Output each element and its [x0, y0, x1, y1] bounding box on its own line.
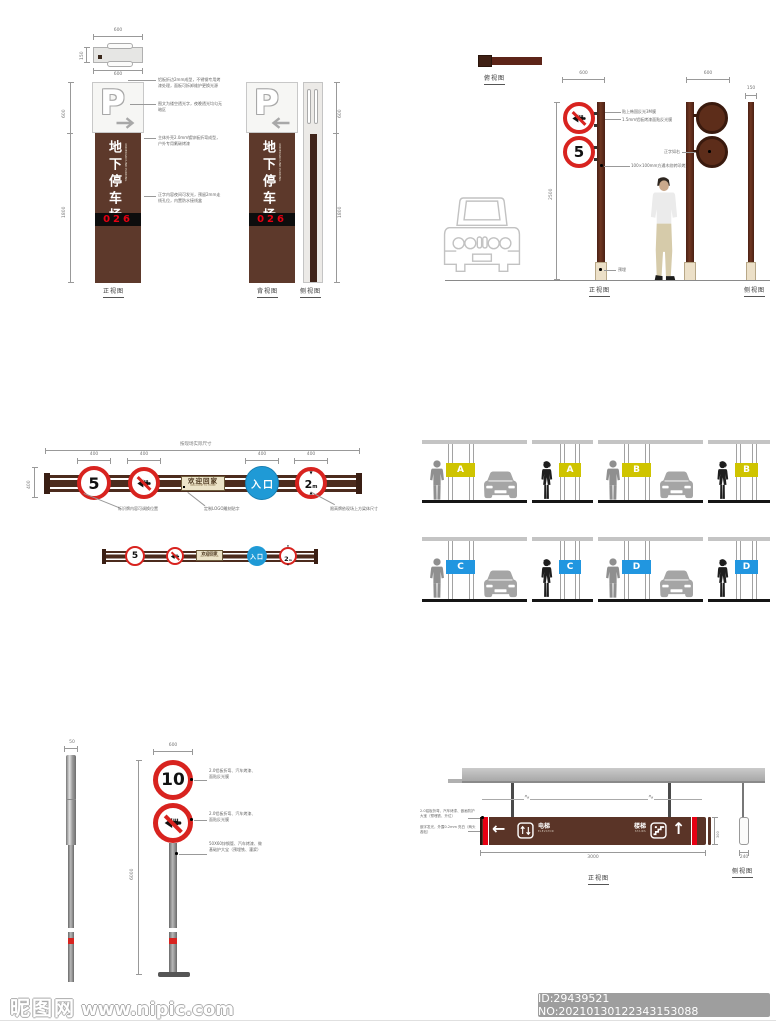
zone-number: 026: [257, 214, 287, 225]
dim-label: 150: [81, 51, 86, 60]
callout-dot: [175, 852, 178, 855]
height-unit: m: [289, 558, 292, 562]
speed-value: 5: [132, 551, 138, 561]
annotation: 标识牌内容可调换位置: [118, 506, 180, 512]
zone-letter: D: [743, 562, 750, 572]
zone-letter: C: [457, 562, 464, 572]
pole-red-band: [169, 938, 177, 944]
man-silhouette: [603, 460, 623, 501]
dim-label: 400: [127, 453, 161, 458]
zone-band: A: [559, 463, 581, 477]
dim-label: 600: [93, 29, 143, 34]
dim-line: [127, 460, 161, 461]
man-silhouette: [427, 558, 447, 599]
sign-bracket: [594, 146, 597, 149]
annotation: 1.5mm铝板烤漆面贴反光膜: [622, 117, 682, 123]
floor-line: [422, 599, 527, 602]
callout-dot: [708, 150, 711, 153]
dim-tick: [67, 133, 73, 134]
no-horn-sign: [128, 467, 160, 499]
ceiling-beam: [422, 440, 527, 444]
car-silhouette: [654, 569, 699, 599]
callout-line: [187, 492, 205, 506]
no-horn-sign: [166, 547, 184, 565]
dim-line: [294, 460, 328, 461]
dim-line: [714, 817, 715, 845]
hanger-rod-side: [742, 783, 744, 817]
sign-pole-side: [748, 102, 754, 280]
dim-label: 2500: [550, 189, 555, 200]
sign-pole-front: [169, 843, 177, 973]
gateway-end-cap: [44, 473, 50, 494]
dim-label: 6000: [131, 869, 136, 880]
dim-line: [138, 760, 139, 975]
dim-line: [64, 748, 78, 749]
ceiling-beam: [462, 768, 765, 783]
pylon-plan-plate-top: [107, 43, 133, 49]
pylon-sub-text: UNDERGROUND PARKING: [124, 143, 128, 181]
callout-line: [179, 854, 207, 855]
person-figure: [647, 176, 681, 281]
man-silhouette: [603, 558, 623, 599]
pole-red-band: [68, 938, 74, 944]
sign-pole-front: [597, 102, 605, 280]
pole-base: [746, 262, 756, 281]
gateway-end-cap: [102, 549, 106, 564]
annotation: 贴上韩国反光3M膜: [622, 109, 682, 115]
floor-line: [708, 500, 770, 503]
sign-bracket: [594, 112, 597, 115]
plate-joint: [66, 799, 76, 800]
speed-limit-sign: 10: [153, 760, 193, 800]
speed-value: 5: [574, 143, 584, 161]
pole-white-band: [169, 928, 177, 932]
dim-label: 600: [339, 109, 344, 118]
car-silhouette: [478, 569, 523, 599]
dim-label: 150: [743, 87, 759, 92]
pylon-side-plate: [314, 89, 318, 124]
elevator-icon: [517, 822, 534, 839]
callout-line: [144, 196, 156, 197]
zone-number: 026: [103, 214, 133, 225]
view-label-side: 侧视图: [744, 288, 765, 297]
zone-letter: A: [567, 465, 574, 475]
annotation: 正字如右: [658, 149, 680, 155]
floor-line: [422, 500, 527, 503]
woman-silhouette: [537, 460, 556, 501]
callout-line: [194, 820, 207, 821]
car-silhouette: [654, 470, 699, 500]
elevator-text-en: ELEVATOR: [538, 830, 554, 834]
annotation: 预埋: [618, 267, 638, 273]
sign-bracket: [594, 124, 597, 127]
woman-silhouette: [537, 558, 556, 599]
zone-letter: D: [633, 562, 640, 572]
dim-label: 1800: [63, 207, 68, 218]
callout-line: [194, 780, 207, 781]
callout-line: [604, 270, 616, 271]
dim-label: 300: [717, 831, 721, 838]
ceiling-beam: [598, 537, 703, 541]
welcome-plaque: 欢迎回家 WELCOME TO HOME: [181, 476, 225, 491]
entrance-sign-small: 入口: [247, 546, 267, 566]
callout-line: [468, 831, 480, 832]
pylon-number-band: 026: [249, 213, 295, 226]
zone-band: D: [735, 560, 758, 574]
dim-label: 400: [245, 453, 279, 458]
zone-band: C: [446, 560, 475, 574]
entrance-text: 入口: [249, 476, 275, 491]
pole-plan-arm: [492, 57, 542, 65]
sign-pole-back: [686, 102, 694, 280]
callout-dot: [481, 816, 484, 819]
callout-line: [128, 80, 156, 81]
callout-line: [144, 138, 156, 139]
arrow-up-glyph: ↑: [672, 819, 685, 838]
dim-label: 600: [562, 72, 605, 77]
floor-line: [708, 599, 770, 602]
dim-label: 600: [93, 73, 143, 78]
hanger-rod: [511, 783, 514, 817]
dim-label: 50: [64, 741, 80, 746]
dim-line: [34, 467, 35, 498]
no-horn-sign: [153, 803, 193, 843]
dim-line: [556, 102, 557, 280]
arrow-up-glyph: ▲: [287, 564, 289, 567]
sign-bracket: [594, 158, 597, 161]
dim-label: 600: [153, 744, 193, 749]
watermark-site: 昵图网: [10, 996, 76, 1020]
plaque-text-en: WELCOME TO HOME: [197, 557, 222, 559]
car-silhouette: [478, 470, 523, 500]
view-label-side: 侧视图: [732, 869, 753, 878]
callout-dot: [183, 486, 185, 488]
pylon-plan-core: [98, 55, 102, 59]
callout-dot: [190, 818, 193, 821]
floor-line: [598, 599, 703, 602]
annotation: 2.0铝板折弯、汽车烤漆、面贴反光膜: [209, 811, 259, 823]
car-outline-drawing: [443, 193, 521, 281]
callout-dot: [600, 164, 603, 167]
zone-letter: B: [633, 465, 640, 475]
gateway-end-cap: [356, 473, 362, 494]
dim-label: 600: [686, 72, 730, 77]
ceiling-beam-step: [448, 779, 462, 783]
annotation: 100×100mm方通木纹转印烤漆: [631, 163, 693, 169]
height-unit: m: [312, 484, 317, 490]
pylon-side-plate: [307, 89, 311, 124]
dim-line: [745, 95, 757, 96]
dim-label: 600: [63, 109, 68, 118]
annotation: 2.0铝板折弯、汽车烤漆、面贴反光膜: [209, 768, 259, 780]
speed-value: 10: [161, 770, 185, 790]
speed-limit-sign: 5: [77, 466, 111, 500]
dim-line: [77, 460, 111, 461]
view-label-side: 侧视图: [300, 289, 321, 298]
sign-plate-side-view: [66, 755, 76, 845]
dim-label: 1800: [339, 207, 344, 218]
pylon-back-sign-box: P: [246, 82, 298, 133]
panel-edge-bar: [708, 817, 711, 845]
ceiling-beam: [598, 440, 703, 444]
stairs-label: 楼梯 STAIRS: [626, 823, 646, 834]
arrow-left-glyph: ←: [492, 819, 505, 838]
annotation: 定制LOGO雕刻贴字: [204, 506, 262, 512]
callout-line: [682, 152, 696, 153]
callout-line: [468, 818, 480, 819]
height-limit-sign: ▼ 2m ▲: [295, 467, 327, 499]
callout-line: [604, 166, 630, 167]
watermark-logo: 昵图网 www.nipic.com: [10, 992, 234, 1021]
pole-plan-cap: [478, 55, 492, 67]
dim-label: 按现场实际尺寸: [180, 443, 212, 448]
hanging-sign-panel: ← 电梯 ELEVATOR 楼梯 STAIRS ↑: [480, 817, 706, 845]
zone-band: B: [735, 463, 758, 477]
sign-bracket: [693, 114, 697, 117]
sign-pole-side: [68, 845, 74, 982]
entrance-sign: 入口: [245, 466, 279, 500]
pole-base: [595, 262, 607, 281]
pylon-plan-plate-bottom: [107, 61, 133, 67]
ceiling-beam: [422, 537, 527, 541]
stairs-icon: [650, 822, 667, 839]
dim-line: [70, 82, 71, 283]
dim-line: [686, 79, 730, 80]
arrow-left-icon: [267, 117, 291, 129]
dim-line: [562, 79, 605, 80]
dim-tick: [333, 133, 339, 134]
annotation: 正字内容夜间可发光，预留2mm走线孔位，内置防水接线盒: [158, 192, 224, 204]
panel-white-gap: [691, 817, 692, 845]
dim-line: [739, 852, 749, 853]
no-horn-sign: [563, 102, 595, 134]
woman-silhouette: [713, 558, 732, 599]
stairs-text-en: STAIRS: [626, 830, 646, 834]
callout-line: [605, 112, 621, 113]
callout-line: [605, 119, 621, 120]
pole-base: [684, 262, 696, 281]
panel-edge: [480, 817, 482, 845]
pylon-sub-text: UNDERGROUND PARKING: [278, 143, 282, 181]
view-label-front: 正视图: [588, 876, 609, 885]
hanging-sign-side-view: [739, 817, 749, 845]
floor-line: [598, 500, 703, 503]
view-label-top: 俯视图: [484, 76, 505, 85]
callout-dot: [190, 778, 193, 781]
panel-white-gap: [488, 817, 489, 845]
annotation: 铝板折边2mm成型，不锈钢专用烤漆处理，面板可拆卸维护更换光源: [158, 77, 224, 89]
zone-letter: A: [457, 465, 464, 475]
watermark-url: www.nipic.com: [81, 999, 234, 1020]
design-sheet: 600 150 600 600 1800 P 地下停车场 UNDERGROUND…: [0, 0, 776, 1024]
view-label-front: 正视图: [103, 289, 124, 298]
welcome-plaque-small: 欢迎回家 WELCOME TO HOME: [196, 550, 223, 561]
sign-back-disc: [696, 136, 728, 168]
pylon-back-body: 地下停车场 UNDERGROUND PARKING 026: [249, 133, 295, 283]
callout-line: [130, 104, 156, 105]
dim-label: 3000: [480, 856, 706, 861]
pole-white-band: [68, 928, 74, 932]
dim-line: [153, 751, 193, 752]
pylon-side-stripe: [310, 134, 317, 282]
dim-line: [86, 47, 87, 63]
watermark-id-text: ID:29439521 NO:20210130122343153088: [538, 992, 770, 1018]
dim-line: [93, 36, 143, 37]
zone-band: B: [622, 463, 651, 477]
annotation: 50X60锌钢管、汽车烤漆、做基础护大宝（预埋铁、灌浆）: [209, 841, 263, 853]
dim-line: [45, 450, 360, 451]
dim-line: [93, 70, 143, 71]
ground-line: [445, 280, 770, 281]
break-line: [482, 799, 702, 800]
man-silhouette: [427, 460, 447, 501]
woman-silhouette: [713, 460, 732, 501]
speed-value: 5: [88, 474, 99, 493]
pole-base-flange: [158, 972, 190, 977]
view-label-front: 正视图: [589, 288, 610, 297]
pylon-front-body: 地下停车场 UNDERGROUND PARKING 026: [95, 133, 141, 283]
sign-back-disc: [696, 102, 728, 134]
break-symbol: ∿: [648, 794, 654, 801]
annotation: 图文为镂空透光字，夜晚透光均匀无暗区: [158, 101, 224, 113]
pylon-front-sign-box: P: [92, 82, 144, 133]
annotation: 限高牌依现场上方梁体尺寸: [330, 506, 388, 512]
callout-dot: [599, 268, 602, 271]
zone-band: D: [622, 560, 651, 574]
dim-label: 240: [735, 856, 753, 861]
dim-label: 400: [294, 453, 328, 458]
watermark-id-box: ID:29439521 NO:20210130122343153088: [538, 993, 770, 1017]
plaque-text-en: WELCOME TO HOME: [182, 485, 224, 488]
arrow-right-icon: [115, 117, 139, 129]
break-symbol: ∿: [524, 794, 530, 801]
speed-limit-sign: 5: [563, 136, 595, 168]
callout-line: [312, 492, 335, 505]
entrance-text: 入口: [250, 552, 264, 561]
hanger-rod: [668, 783, 671, 817]
zone-letter: B: [743, 465, 750, 475]
dim-line: [480, 852, 706, 853]
height-limit-sign-small: ▼ 2m ▲: [279, 547, 297, 565]
dim-line: [336, 82, 337, 283]
zone-letter: C: [567, 562, 574, 572]
panel-red-stripe: [692, 817, 697, 845]
view-label-back: 背视图: [257, 289, 278, 298]
dim-line: [245, 460, 279, 461]
annotation: 主体外壳2.0mm镀锌板折弯成型，户外专用氟碳烤漆: [158, 135, 224, 147]
dim-label: 400: [28, 480, 33, 489]
pylon-number-band: 026: [95, 213, 141, 226]
gateway-end-cap: [314, 549, 318, 564]
elevator-label: 电梯 ELEVATOR: [538, 823, 554, 834]
zone-band: A: [446, 463, 475, 477]
floor-line: [532, 599, 593, 602]
dim-label: 400: [77, 453, 111, 458]
speed-limit-sign: 5: [125, 546, 145, 566]
pylon-side-body: [303, 82, 323, 283]
floor-line: [532, 500, 593, 503]
zone-band: C: [559, 560, 581, 574]
